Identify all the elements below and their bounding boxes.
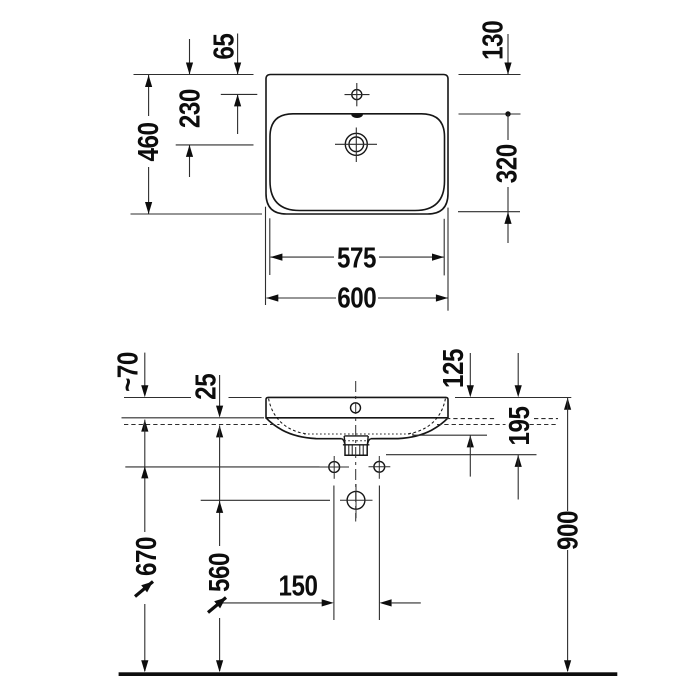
svg-text:600: 600 <box>337 281 376 313</box>
svg-text:125: 125 <box>437 348 469 388</box>
svg-text:~70: ~70 <box>111 352 143 392</box>
svg-text:575: 575 <box>337 242 377 274</box>
svg-text:150: 150 <box>278 569 317 601</box>
svg-text:65: 65 <box>207 33 239 60</box>
svg-text:130: 130 <box>476 21 508 60</box>
svg-text:195: 195 <box>503 406 535 446</box>
svg-text:900: 900 <box>551 511 583 550</box>
svg-text:560: 560 <box>203 553 235 592</box>
svg-text:460: 460 <box>132 122 164 161</box>
svg-text:320: 320 <box>490 144 522 183</box>
svg-text:230: 230 <box>174 89 206 128</box>
svg-text:25: 25 <box>190 373 222 400</box>
svg-text:670: 670 <box>130 537 162 576</box>
